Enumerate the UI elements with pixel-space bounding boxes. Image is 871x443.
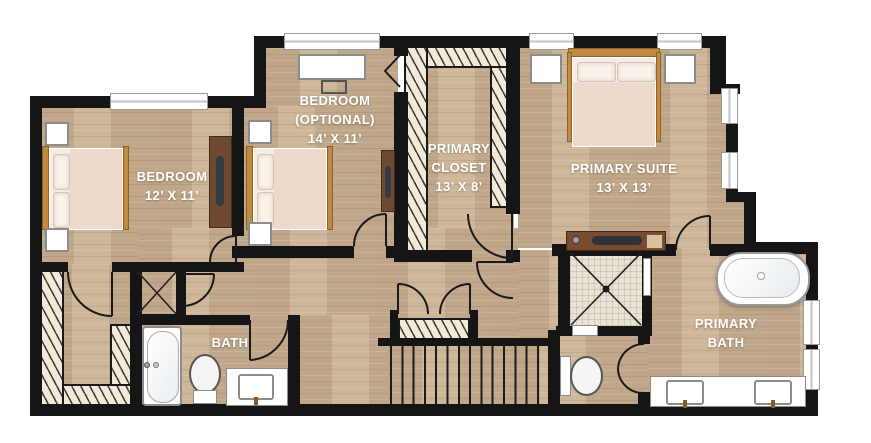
room-name: BEDROOM	[255, 91, 415, 110]
room-label-primary-suite: PRIMARY SUITE 13’ X 13’	[544, 159, 704, 197]
attic-x	[137, 271, 177, 315]
room-label-primary-bath: PRIMARY BATH	[676, 314, 776, 352]
room-label-primary-closet: PRIMARY CLOSET 13’ X 8’	[409, 139, 509, 196]
room-name: PRIMARY	[676, 314, 776, 333]
room-qualifier: (OPTIONAL)	[255, 110, 415, 129]
shower-drain	[603, 286, 610, 293]
room-name: PRIMARY	[409, 139, 509, 158]
door-arc	[354, 214, 386, 246]
room-dims: 13’ X 13’	[544, 178, 704, 197]
door-arc	[210, 236, 236, 262]
bifold-door	[385, 55, 400, 87]
door-arc	[618, 344, 644, 369]
floor-plan: BEDROOM 12’ X 11’ BEDROOM (OPTIONAL) 14’…	[0, 0, 871, 443]
door-arc	[676, 216, 710, 250]
room-dims: 12’ X 11’	[92, 186, 252, 205]
room-name: CLOSET	[409, 158, 509, 177]
room-dims: 13’ X 8’	[409, 177, 509, 196]
door-arc	[618, 369, 644, 393]
door-arc	[468, 214, 512, 258]
room-name: BATH	[190, 333, 270, 352]
door-arc	[440, 284, 470, 314]
room-name: PRIMARY SUITE	[544, 159, 704, 178]
room-name: BATH	[676, 333, 776, 352]
room-label-bath: BATH	[190, 333, 270, 352]
room-label-bedroom-left: BEDROOM 12’ X 11’	[92, 167, 252, 205]
door-arc	[477, 262, 513, 298]
door-swings-overlay	[0, 0, 871, 443]
room-name: BEDROOM	[92, 167, 252, 186]
door-arc	[68, 272, 112, 316]
door-arc	[182, 274, 214, 306]
door-arc	[398, 284, 428, 314]
room-label-bedroom-optional: BEDROOM (OPTIONAL) 14’ X 11’	[255, 91, 415, 148]
room-dims: 14’ X 11’	[255, 129, 415, 148]
